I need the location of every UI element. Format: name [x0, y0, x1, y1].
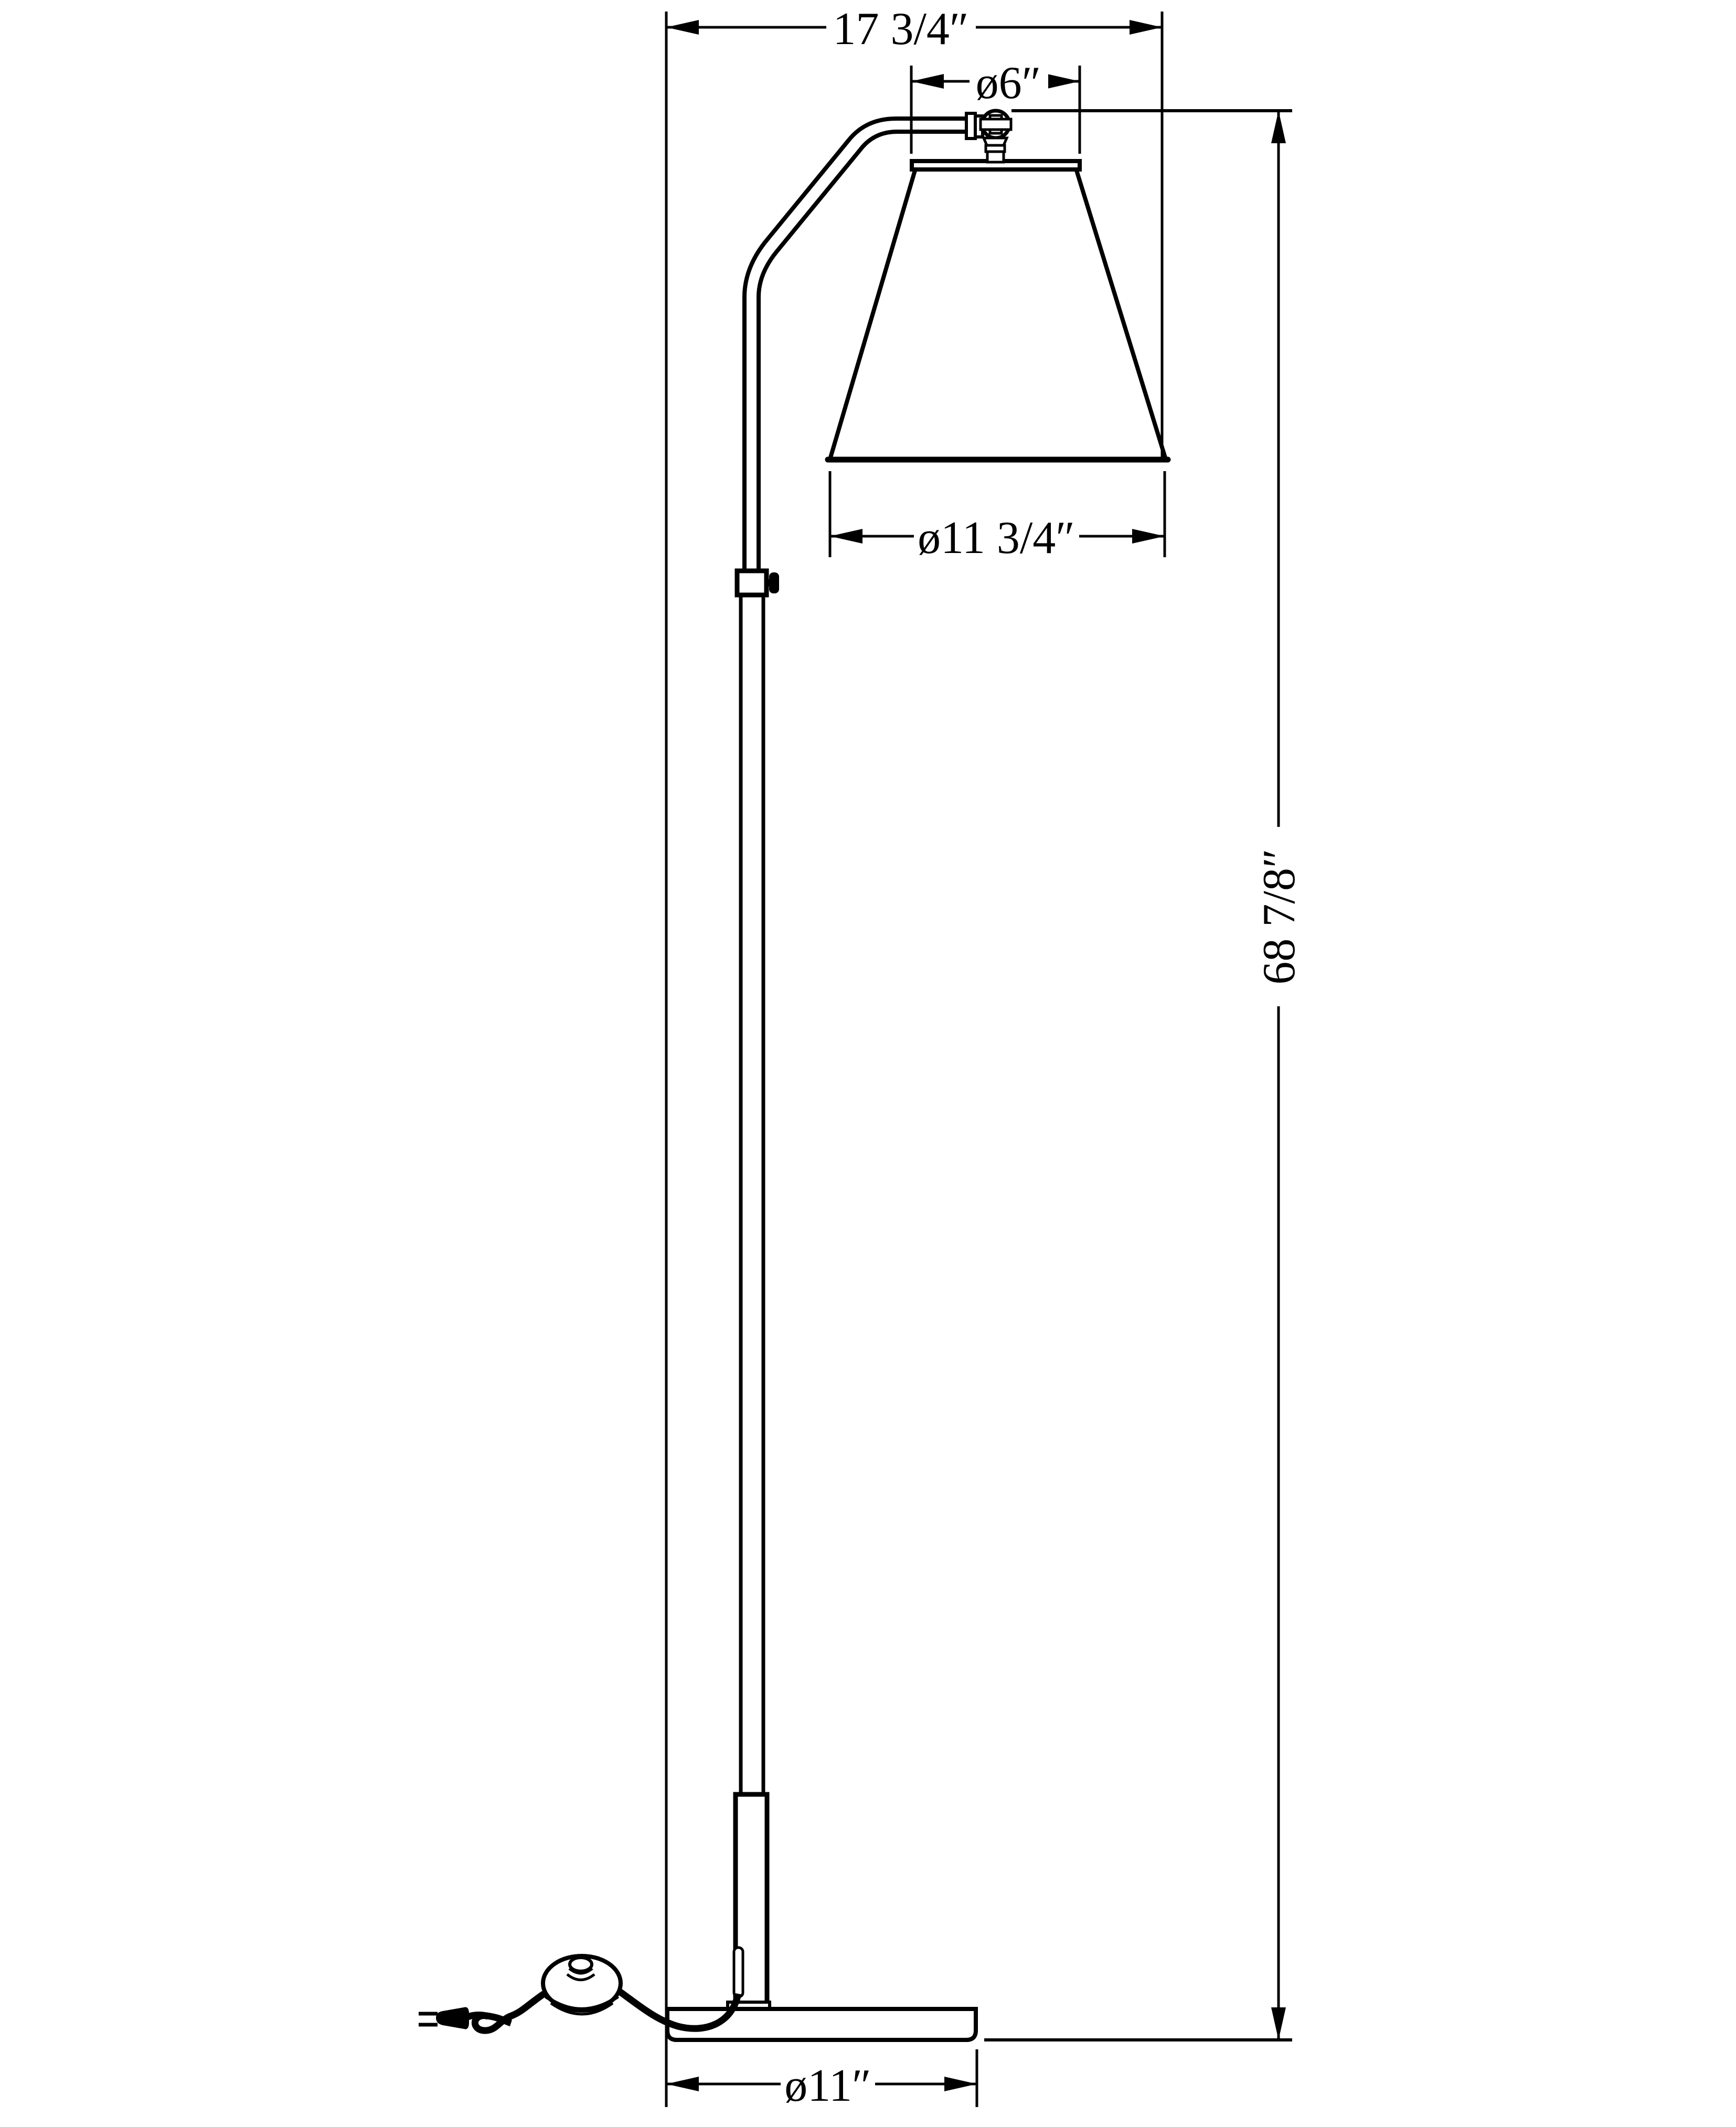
cord-strain-relief — [734, 1948, 743, 1997]
arrow-left-icon — [830, 529, 862, 544]
power-plug-body — [436, 2007, 469, 2029]
shade-left-slant — [830, 171, 915, 458]
arrow-right-icon — [1130, 20, 1162, 35]
arrow-right-icon — [1132, 529, 1165, 544]
arrow-down-icon — [1271, 2007, 1286, 2040]
shade-right-slant — [1077, 171, 1165, 458]
label-backgrounds — [781, 4, 1308, 2108]
swivel-screw-slot — [981, 119, 1011, 130]
arrow-right-icon — [944, 2077, 977, 2091]
power-cord — [475, 1994, 544, 2030]
lamp-drawing-svg: 17 3/4″ ø6″ ø11 3/4″ 68 7/8″ ø11″ — [0, 0, 1736, 2127]
shade-top-diameter-label: ø6″ — [976, 58, 1041, 109]
height-leader-lines — [984, 111, 1292, 2040]
dimension-drawing: 17 3/4″ ø6″ ø11 3/4″ 68 7/8″ ø11″ — [0, 0, 1736, 2127]
shade-bottom-diameter-label: ø11 3/4″ — [918, 513, 1075, 563]
collar-knob-icon — [769, 572, 779, 593]
arrow-left-icon — [666, 2077, 699, 2091]
lamp-base — [667, 2002, 976, 2040]
arrow-right-icon — [1047, 74, 1080, 89]
arm-outer-line — [744, 119, 966, 572]
socket-stem — [987, 152, 1004, 162]
arrow-left-icon — [666, 20, 699, 35]
arrow-up-icon — [1271, 111, 1286, 143]
adjustment-collar — [737, 571, 766, 595]
overall-width-label: 17 3/4″ — [833, 4, 968, 55]
base-diameter-label: ø11″ — [784, 2060, 871, 2111]
foot-switch-button[interactable] — [570, 1958, 592, 1971]
lamp-shade — [828, 161, 1168, 460]
arrow-left-icon — [911, 74, 944, 89]
overall-height-label: 68 7/8″ — [1254, 848, 1305, 984]
lamp-arm-and-pole — [736, 111, 1011, 2003]
